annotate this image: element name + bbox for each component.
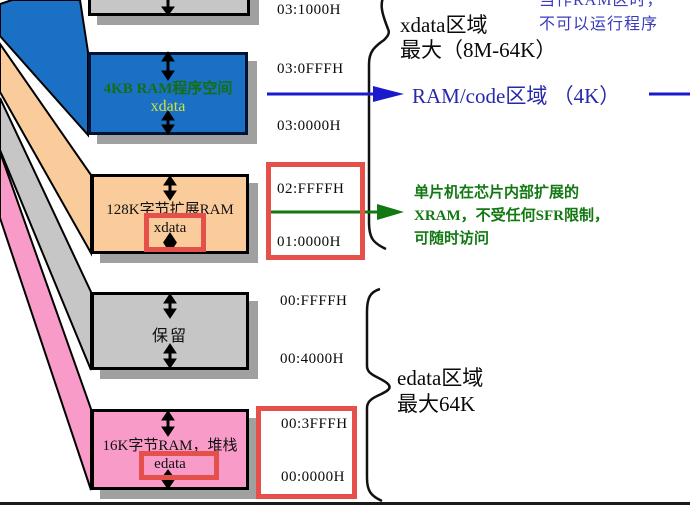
xram-note-line1: 单片机在芯片内部扩展的: [414, 181, 579, 202]
xdata-region-size: 最大（8M-64K）: [400, 34, 556, 64]
address-label: 03:0000H: [277, 118, 341, 135]
memory-box-top-partial: [88, 0, 250, 16]
address-label: 03:1000H: [277, 2, 341, 19]
ram4k-title: 4KB RAM程序空间: [91, 77, 245, 98]
xdata-region-brace: [369, 0, 389, 249]
memory-box-ram4k: 4KB RAM程序空间 xdata: [88, 52, 248, 135]
orange-band: [0, 44, 91, 253]
address-label: 00:3FFFH: [281, 416, 348, 433]
address-label: 00:0000H: [281, 469, 345, 486]
ramcode-note-line2: 不可以运行程序: [539, 10, 658, 34]
highlight-edata-label: [139, 451, 219, 480]
address-label: 00:FFFFH: [280, 293, 347, 310]
ramcode-region-label: RAM/code区域 （4K）: [412, 80, 620, 110]
edata-region-size: 最大64K: [397, 388, 475, 418]
bottom-divider: [0, 502, 690, 505]
address-label: 01:0000H: [277, 234, 341, 251]
pink-band: [0, 152, 91, 490]
address-label: 03:0FFFH: [277, 61, 344, 78]
edata-region-brace: [367, 289, 390, 501]
ramcode-note-line1: 当作RAM区时，: [539, 0, 663, 10]
xram-note-line3: 可随时访问: [414, 227, 489, 248]
address-label: 00:4000H: [280, 351, 344, 368]
blue-band: [0, 0, 88, 135]
memory-map-diagram: 4KB RAM程序空间 xdata 128K字节扩展RAM xdata 保留 1…: [0, 0, 690, 515]
ram4k-subtitle: xdata: [91, 98, 245, 116]
reserved-title: 保留: [94, 322, 246, 346]
address-label: 02:FFFFH: [277, 181, 344, 198]
gray-band: [0, 98, 91, 370]
memory-box-reserved: 保留: [91, 292, 249, 370]
xram-note-line2: XRAM，不受任何SFR限制，: [414, 204, 609, 225]
highlight-xdata-label: [144, 213, 206, 252]
